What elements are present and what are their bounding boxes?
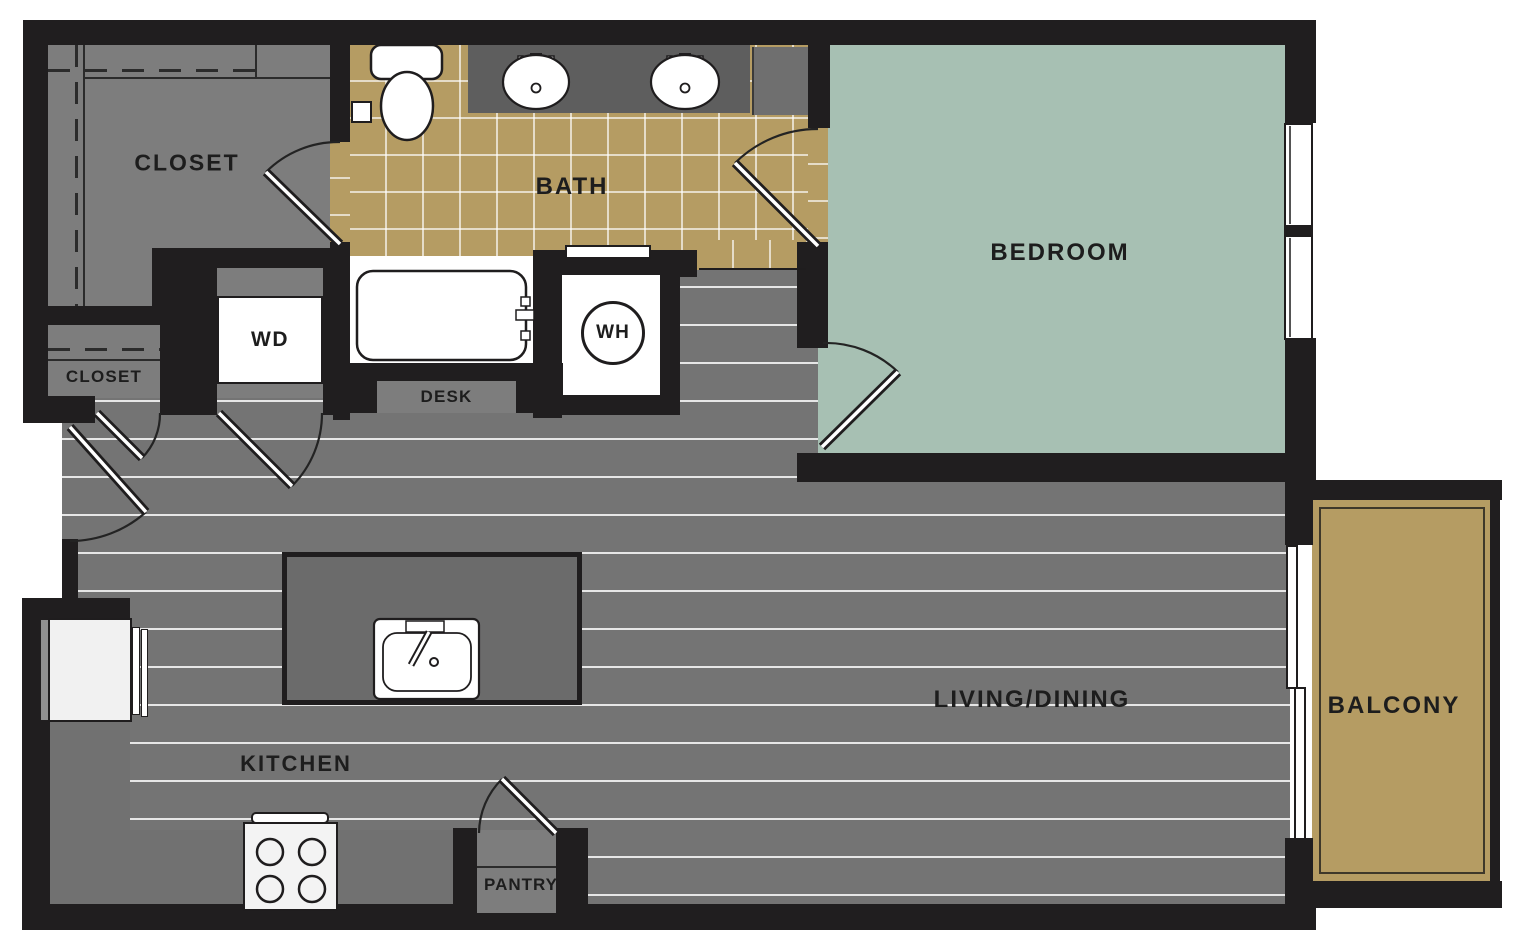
wall-segment bbox=[22, 904, 1316, 930]
wall-segment bbox=[1285, 497, 1313, 545]
water-heater-unit: WH bbox=[581, 301, 645, 365]
pantry-floor bbox=[477, 830, 556, 913]
closet-rod-dashed-line bbox=[48, 348, 160, 351]
kitchen-label: KITCHEN bbox=[240, 751, 352, 777]
closet-shelf-line bbox=[48, 359, 160, 361]
wall-segment bbox=[330, 20, 350, 142]
wall-segment bbox=[808, 20, 830, 128]
wall-segment bbox=[1285, 838, 1313, 885]
sliding-door-panel-left bbox=[1286, 545, 1298, 689]
wall-segment bbox=[1285, 20, 1316, 123]
bedroom-window-upper bbox=[1284, 123, 1313, 227]
wall-segment bbox=[797, 453, 1316, 482]
washer-dryer-unit: WD bbox=[217, 296, 323, 384]
wall-segment bbox=[1285, 881, 1502, 908]
balcony-edge-line bbox=[1319, 507, 1485, 874]
tub-niche bbox=[350, 256, 533, 365]
closet-main-floor-leg bbox=[48, 253, 160, 308]
closet-shelf-divider bbox=[255, 45, 257, 78]
balcony-label: BALCONY bbox=[1328, 692, 1461, 720]
desk-label: DESK bbox=[420, 387, 472, 407]
refrigerator-door-line bbox=[141, 629, 148, 717]
living-dining-label: LIVING/DINING bbox=[934, 686, 1131, 714]
pantry-label: PANTRY bbox=[484, 875, 558, 895]
closet-shelf-line bbox=[83, 45, 85, 306]
closet-shelf-line bbox=[83, 77, 330, 79]
wall-segment bbox=[23, 306, 160, 325]
closet-main-label: CLOSET bbox=[134, 150, 239, 177]
bedroom-window-lower bbox=[1284, 235, 1313, 340]
wall-segment bbox=[160, 306, 217, 415]
wall-segment bbox=[152, 266, 217, 308]
balcony-rail bbox=[1490, 497, 1500, 887]
wall-segment bbox=[556, 828, 588, 914]
closet-rod-dashed-line bbox=[75, 45, 78, 306]
fridge-side-strip bbox=[41, 620, 48, 720]
refrigerator bbox=[48, 618, 132, 722]
closet-rod-dashed-line bbox=[48, 69, 256, 72]
bath-tile-threshold-column bbox=[697, 240, 808, 270]
pantry-shelf-line bbox=[477, 866, 556, 868]
desk-nook: DESK bbox=[377, 381, 516, 413]
refrigerator-door-line bbox=[132, 627, 140, 715]
wall-segment bbox=[1285, 480, 1502, 500]
closet-hall-label: CLOSET bbox=[66, 367, 142, 387]
entry-alcove-outside bbox=[0, 418, 62, 602]
wall-segment bbox=[533, 250, 562, 418]
wall-segment bbox=[152, 248, 350, 268]
stove bbox=[243, 822, 338, 911]
wall-segment bbox=[660, 250, 680, 415]
vanity-counter bbox=[468, 45, 750, 113]
wall-segment bbox=[680, 250, 697, 277]
kitchen-island bbox=[282, 552, 582, 705]
washer-dryer-label: WD bbox=[251, 328, 289, 352]
vanity-end-cabinet bbox=[752, 47, 808, 115]
wall-segment bbox=[453, 828, 477, 914]
wall-segment bbox=[1285, 338, 1316, 497]
bath-label: BATH bbox=[536, 173, 609, 201]
wall-segment bbox=[62, 539, 78, 600]
wall-segment bbox=[23, 20, 48, 402]
water-heater-label: WH bbox=[596, 322, 630, 344]
bath-doorway bbox=[808, 128, 828, 242]
closet-main-doorway bbox=[330, 142, 350, 242]
wall-segment bbox=[30, 20, 1316, 45]
wall-segment bbox=[23, 396, 95, 423]
wall-segment bbox=[533, 395, 680, 415]
floor-plan-canvas: DESK WD WH bbox=[0, 0, 1525, 947]
bedroom-label: BEDROOM bbox=[990, 239, 1129, 267]
wall-segment bbox=[797, 242, 828, 348]
sliding-door-panel-right bbox=[1294, 687, 1306, 840]
